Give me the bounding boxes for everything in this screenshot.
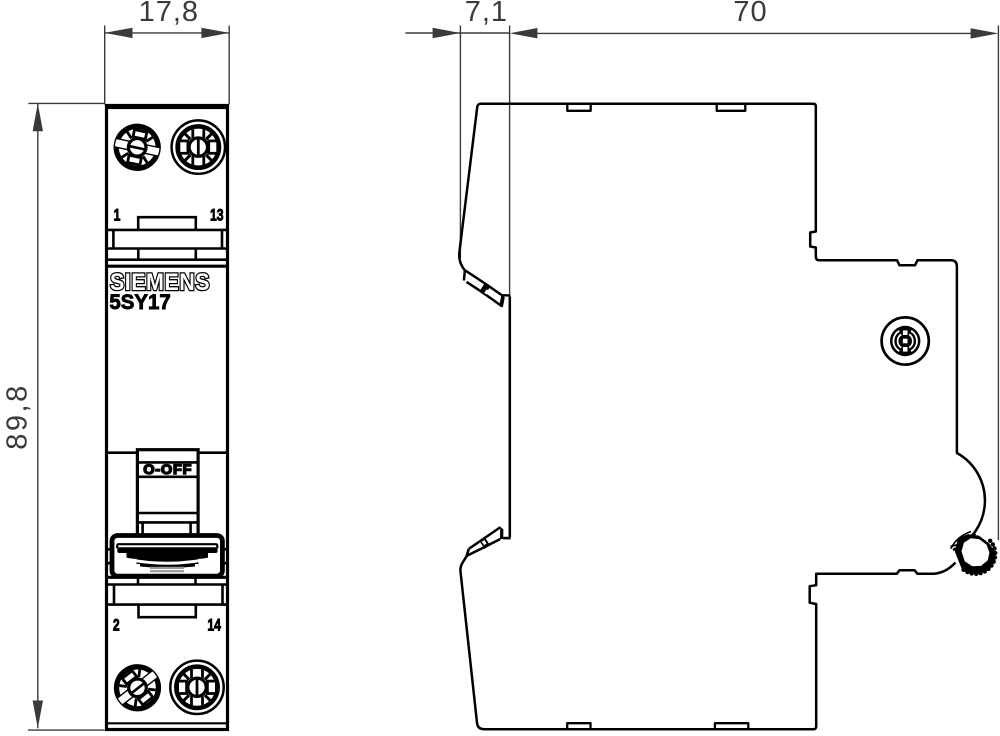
svg-text:1: 1: [114, 207, 121, 225]
svg-text:14: 14: [207, 617, 221, 635]
svg-text:89,8: 89,8: [1, 383, 33, 449]
svg-text:7,1: 7,1: [465, 0, 508, 28]
svg-text:70: 70: [733, 0, 767, 28]
svg-text:17,8: 17,8: [139, 0, 199, 28]
svg-text:5SY17: 5SY17: [109, 290, 170, 314]
svg-text:O-OFF: O-OFF: [143, 461, 192, 477]
svg-text:13: 13: [210, 207, 224, 225]
svg-text:2: 2: [113, 617, 120, 635]
